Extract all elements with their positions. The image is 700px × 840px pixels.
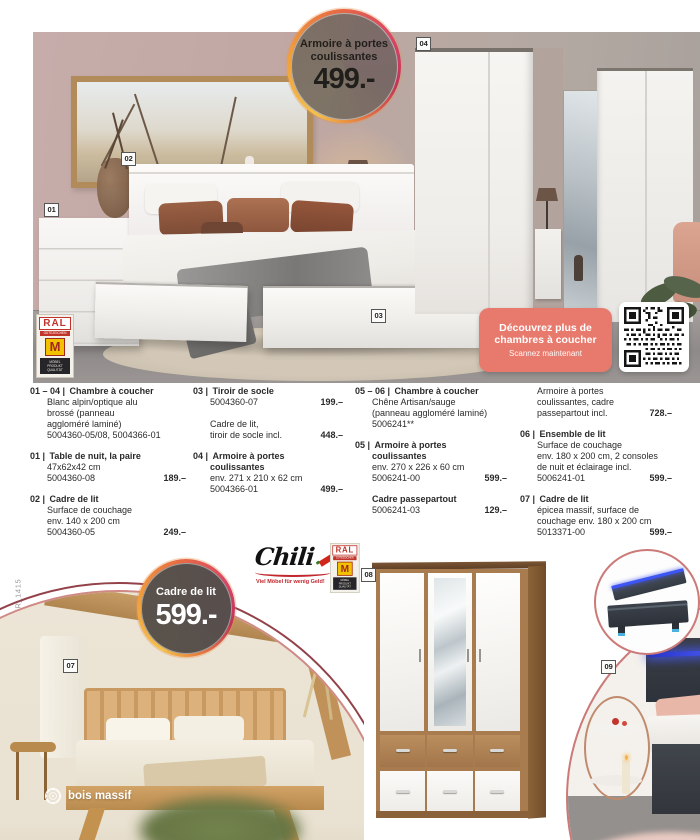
product-line: 5006241-03129.–	[372, 505, 507, 516]
promo-line1: Découvrez plus de	[499, 322, 592, 334]
product-number: 05 |	[355, 440, 375, 450]
product-line: 5006241**	[372, 419, 507, 430]
product-title: 01 | Table de nuit, la paire	[47, 451, 186, 462]
product-item: 01 – 04 | Chambre à coucherBlanc alpin/o…	[30, 386, 186, 441]
qr-pattern	[624, 307, 684, 367]
product-line: 5004366-01499.–	[210, 484, 343, 495]
marker-09: 09	[601, 660, 616, 674]
oak-drawer-row	[380, 735, 520, 767]
product-number: 01 – 04 |	[30, 386, 70, 396]
product-column-1: 01 – 04 | Chambre à coucherBlanc alpin/o…	[30, 386, 186, 548]
bed-foot-accent	[672, 629, 679, 632]
ral-footer: MÖBEL PRODUKT QUALITÄT	[333, 577, 356, 589]
product-line: env. 271 x 210 x 62 cm	[210, 473, 343, 484]
marker-04: 04	[416, 37, 431, 51]
product-line: épicea massif, surface de	[537, 505, 672, 516]
sliding-door-wardrobe	[415, 48, 533, 314]
underbed-drawer	[94, 282, 247, 342]
product-line: tiroir de socle incl.448.–	[210, 430, 343, 441]
product-column-3: 05 – 06 | Chambre à coucherChêne Artisan…	[355, 386, 507, 526]
product-line: 5006241-00599.–	[372, 473, 507, 484]
decor-fruit	[612, 718, 619, 725]
marker-03: 03	[371, 309, 386, 323]
product-item: 07 | Cadre de litépicea massif, surface …	[520, 494, 672, 538]
product-line: (panneau aggloméré laminé)	[372, 408, 507, 419]
product-item: 03 | Tiroir de socle5004360-07199.– Cadr…	[193, 386, 343, 441]
product-price: 599.–	[484, 473, 507, 484]
product-item: 05 – 06 | Chambre à coucherChêne Artisan…	[355, 386, 507, 430]
mirror-panel	[563, 90, 599, 310]
product-line: Surface de couchage	[537, 440, 672, 451]
bed-leg	[75, 808, 105, 840]
product-line: Blanc alpin/optique alu	[47, 397, 186, 408]
wardrobe-photo	[364, 556, 564, 840]
bed-leg	[672, 621, 679, 629]
product-number: 05 – 06 |	[355, 386, 395, 396]
product-line: Armoire à portes	[537, 386, 672, 397]
mini-dresser	[535, 229, 561, 299]
ral-band: GÜTEZEICHEN	[40, 331, 70, 336]
product-price: 189.–	[163, 473, 186, 484]
product-line: 5006241-01599.–	[537, 473, 672, 484]
product-price: 129.–	[484, 505, 507, 516]
dark-bed-base	[652, 744, 700, 814]
product-price: 599.–	[649, 473, 672, 484]
product-item: 05 | Armoire à portes coulissantesenv. 2…	[355, 440, 507, 484]
price-badge-price: 599.-	[155, 600, 216, 630]
price-badge-bed: Cadre de lit 599.-	[137, 559, 235, 657]
stool	[10, 742, 56, 752]
product-item: Armoire à portescoulissantes, cadrepasse…	[520, 386, 672, 419]
drawer	[380, 735, 425, 767]
ral-letter: M	[45, 338, 65, 356]
branch	[219, 97, 236, 171]
ral-letter: M	[337, 562, 353, 576]
product-line: env. 180 x 200 cm, 2 consoles	[537, 451, 672, 462]
ral-quality-badge: RAL GÜTEZEICHEN M MÖBEL PRODUKT QUALITÄT	[330, 543, 360, 593]
product-line: 5004360-05/08, 5004366-01	[47, 430, 186, 441]
product-item: Cadre passepartout5006241-03129.–	[355, 494, 507, 516]
candle	[622, 760, 630, 794]
cart-shelf	[590, 724, 642, 735]
product-title: 01 – 04 | Chambre à coucher	[47, 386, 186, 397]
product-price: 199.–	[320, 397, 343, 408]
product-price: 249.–	[163, 527, 186, 538]
catalog-page: 20250328_IN_FR_1415	[0, 0, 700, 840]
product-line: 5004360-08189.–	[47, 473, 186, 484]
product-number: 04 |	[193, 451, 213, 461]
product-price: 728.–	[649, 408, 672, 419]
product-line: 5004360-05249.–	[47, 527, 186, 538]
product-line: coulissantes, cadre	[537, 397, 672, 408]
cart-shelf	[590, 775, 642, 786]
drawer	[475, 771, 520, 813]
bois-massif-label: bois massif	[45, 788, 131, 804]
bed-lift-lid	[611, 568, 686, 600]
product-item: 04 | Armoire à portes coulissantesenv. 2…	[193, 451, 343, 495]
product-line: passepartout incl.728.–	[537, 408, 672, 419]
product-line: Chêne Artisan/sauge	[372, 397, 507, 408]
product-line	[210, 408, 343, 419]
pillow	[174, 716, 244, 742]
small-lamp-pole	[546, 201, 548, 229]
product-number: 03 |	[193, 386, 213, 396]
ral-word: RAL	[333, 545, 358, 555]
wood-grain-icon	[45, 788, 61, 804]
drawer	[427, 771, 472, 813]
wardrobe-body	[376, 569, 528, 818]
product-title: 02 | Cadre de lit	[47, 494, 186, 505]
product-number: 06 |	[520, 429, 540, 439]
storage-bed-inset	[594, 549, 700, 655]
wardrobe-door	[380, 573, 424, 731]
product-item: 01 | Table de nuit, la paire47x62x42 cm5…	[30, 451, 186, 484]
bed-foot-accent	[618, 633, 625, 636]
promo-banner: Découvrez plus de chambres à coucher Sca…	[479, 308, 612, 372]
product-price: 448.–	[320, 430, 343, 441]
product-item: 06 | Ensemble de litSurface de couchagee…	[520, 429, 672, 484]
small-lamp	[536, 188, 558, 201]
product-line: 5004360-07199.–	[210, 397, 343, 408]
price-badge-price: 499.-	[313, 64, 374, 94]
chili-logo: Chili Viel Möbel für wenig Geld!	[255, 545, 337, 589]
white-drawer-row	[380, 771, 520, 813]
product-line: couchage env. 180 x 200 cm	[537, 516, 672, 527]
product-title: 05 – 06 | Chambre à coucher	[372, 386, 507, 397]
mirror	[434, 578, 466, 726]
product-price: 499.–	[320, 484, 343, 495]
product-line: aggloméré laminé)	[47, 419, 186, 430]
ral-band: GÜTEZEICHEN	[333, 556, 356, 560]
drawer	[380, 771, 425, 813]
product-title: 06 | Ensemble de lit	[537, 429, 672, 440]
ral-word: RAL	[39, 317, 71, 330]
wardrobe-side-panel	[528, 565, 546, 818]
price-badge-label: Cadre de lit	[147, 586, 225, 599]
drawer	[475, 735, 520, 767]
ral-quality-badge: RAL GÜTEZEICHEN M MÖBEL PRODUKT QUALITÄT	[36, 314, 74, 378]
product-line: de nuit et éclairage incl.	[537, 462, 672, 473]
ral-footer: MÖBEL PRODUKT QUALITÄT	[40, 358, 70, 374]
product-column-4: Armoire à portescoulissantes, cadrepasse…	[520, 386, 672, 548]
price-badge-label: Armoire à portes coulissantes	[298, 38, 390, 63]
product-title: 03 | Tiroir de socle	[210, 386, 343, 397]
bed-leg	[618, 625, 625, 633]
chili-underline	[255, 566, 331, 577]
product-line: Surface de couchage	[47, 505, 186, 516]
marker-07: 07	[63, 659, 78, 673]
product-title: 05 | Armoire à portes coulissantes	[372, 440, 507, 462]
marker-08: 08	[361, 568, 376, 582]
product-title: 04 | Armoire à portes coulissantes	[210, 451, 343, 473]
wardrobe-base	[376, 811, 528, 818]
bar-cart-nightstand	[584, 696, 650, 800]
branch	[134, 94, 162, 175]
product-line: Cadre de lit,	[210, 419, 343, 430]
product-line: brossé (panneau	[47, 408, 186, 419]
curtain	[40, 636, 84, 758]
promo-line2: chambres à coucher	[494, 334, 596, 346]
product-line: env. 140 x 200 cm	[47, 516, 186, 527]
product-number: 07 |	[520, 494, 540, 504]
product-line: env. 270 x 226 x 60 cm	[372, 462, 507, 473]
product-title: 07 | Cadre de lit	[537, 494, 672, 505]
promo-cta: Scannez maintenant	[509, 349, 582, 358]
wardrobe-door	[476, 573, 520, 731]
product-line: 47x62x42 cm	[47, 462, 186, 473]
product-line: 5013371-00599.–	[537, 527, 672, 538]
product-column-2: 03 | Tiroir de socle5004360-07199.– Cadr…	[193, 386, 343, 505]
decor-vase	[97, 158, 133, 218]
drawer	[427, 735, 472, 767]
product-price: 599.–	[649, 527, 672, 538]
wardrobe-door-mirror	[428, 573, 472, 731]
product-title: Cadre passepartout	[372, 494, 507, 505]
marker-02: 02	[121, 152, 136, 166]
product-number: 01 |	[30, 451, 50, 461]
price-badge-wardrobe: Armoire à portes coulissantes 499.-	[287, 9, 401, 123]
marker-01: 01	[44, 203, 59, 217]
product-item: 02 | Cadre de litSurface de couchageenv.…	[30, 494, 186, 538]
chili-tagline: Viel Möbel für wenig Geld!	[256, 579, 325, 585]
qr-code	[619, 302, 689, 372]
product-number: 02 |	[30, 494, 50, 504]
